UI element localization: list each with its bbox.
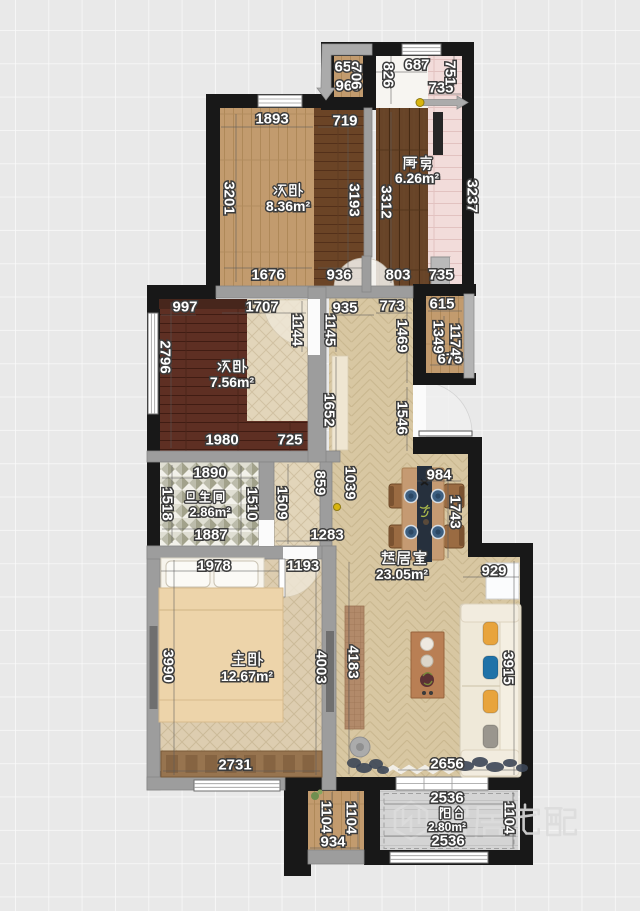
svg-text:1510: 1510	[244, 487, 261, 520]
svg-text:1283: 1283	[310, 527, 343, 544]
svg-text:751: 751	[442, 60, 459, 85]
svg-text:4003: 4003	[313, 650, 330, 683]
svg-text:7.56m²: 7.56m²	[210, 374, 255, 390]
svg-text:1980: 1980	[205, 432, 238, 449]
svg-text:1349: 1349	[430, 320, 447, 353]
svg-text:1193: 1193	[287, 558, 320, 575]
svg-text:2796: 2796	[157, 340, 174, 373]
svg-text:803: 803	[385, 267, 410, 284]
svg-text:1104: 1104	[343, 802, 360, 835]
svg-text:773: 773	[379, 298, 404, 315]
svg-text:2731: 2731	[218, 757, 251, 774]
svg-text:706: 706	[348, 64, 365, 89]
svg-text:1890: 1890	[193, 465, 226, 482]
svg-text:934: 934	[320, 834, 346, 851]
svg-text:1174: 1174	[447, 324, 464, 357]
svg-text:936: 936	[326, 267, 351, 284]
svg-text:1707: 1707	[245, 299, 278, 316]
svg-text:3201: 3201	[221, 181, 238, 214]
svg-text:1039: 1039	[342, 466, 359, 499]
svg-text:2.80m²: 2.80m²	[428, 820, 466, 834]
svg-text:1104: 1104	[318, 801, 335, 834]
svg-text:1652: 1652	[321, 393, 338, 426]
svg-text:3312: 3312	[378, 185, 395, 218]
svg-text:12.67m²: 12.67m²	[221, 668, 273, 684]
svg-text:2536: 2536	[431, 833, 464, 850]
svg-text:735: 735	[428, 267, 453, 284]
svg-text:1546: 1546	[394, 401, 411, 434]
svg-text:1145: 1145	[322, 314, 339, 347]
svg-text:826: 826	[380, 62, 397, 87]
svg-text:2656: 2656	[430, 756, 463, 773]
svg-text:2.86m²: 2.86m²	[189, 505, 231, 520]
svg-text:1104: 1104	[501, 802, 518, 835]
svg-text:1893: 1893	[255, 111, 288, 128]
svg-text:1518: 1518	[159, 487, 176, 520]
svg-text:615: 615	[429, 296, 454, 313]
svg-text:23.05m²: 23.05m²	[376, 566, 428, 582]
svg-text:4183: 4183	[345, 645, 362, 678]
svg-text:1144: 1144	[289, 314, 306, 347]
svg-text:929: 929	[481, 563, 506, 580]
svg-text:3915: 3915	[500, 651, 517, 684]
svg-text:1887: 1887	[194, 527, 227, 544]
svg-text:1978: 1978	[197, 558, 230, 575]
svg-text:1676: 1676	[251, 267, 284, 284]
svg-text:2536: 2536	[430, 790, 463, 807]
svg-text:6.26m²: 6.26m²	[395, 170, 440, 186]
svg-text:3990: 3990	[160, 649, 177, 682]
svg-text:3237: 3237	[464, 179, 481, 212]
svg-text:1509: 1509	[274, 486, 291, 519]
svg-text:997: 997	[172, 299, 197, 316]
svg-text:3193: 3193	[346, 183, 363, 216]
svg-text:725: 725	[277, 432, 302, 449]
svg-text:984: 984	[426, 467, 452, 484]
svg-text:687: 687	[404, 57, 429, 74]
svg-text:719: 719	[332, 113, 357, 130]
svg-text:1743: 1743	[447, 495, 464, 528]
svg-text:8.36m²: 8.36m²	[266, 198, 311, 214]
svg-text:859: 859	[312, 470, 329, 495]
svg-text:1469: 1469	[394, 319, 411, 352]
